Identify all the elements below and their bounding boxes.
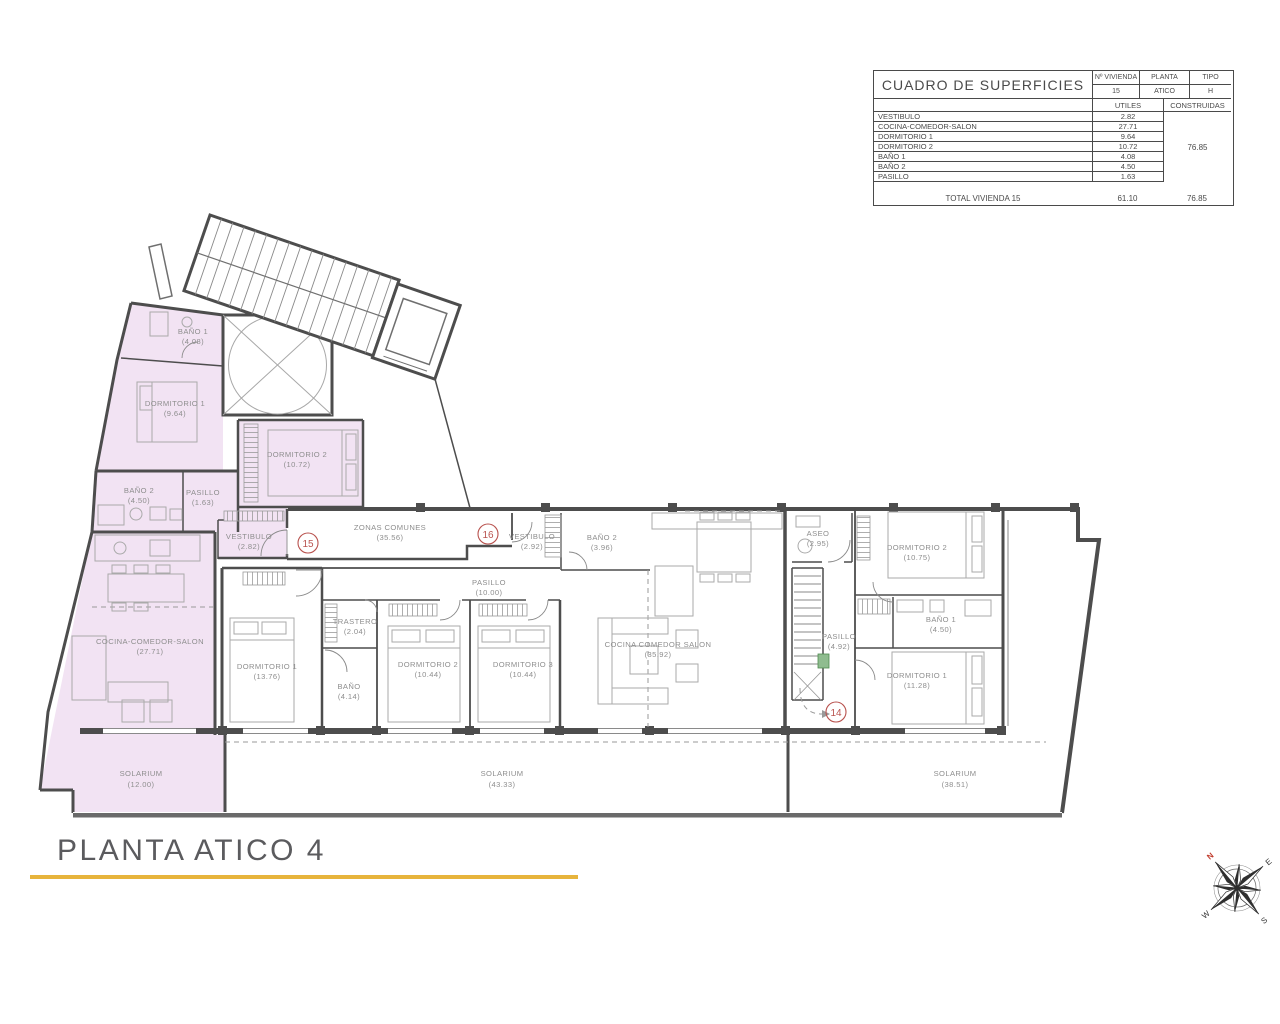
room-label: COCINA COMEDOR SALON (605, 640, 712, 649)
table-row-label: COCINA-COMEDOR-SALON (874, 122, 1092, 132)
room-label: DORMITORIO 1 (237, 662, 297, 671)
room-label: BAÑO 1 (926, 615, 956, 624)
room-label: DORMITORIO 3 (493, 660, 553, 669)
room-area: (38.51) (942, 780, 969, 789)
col-planta: PLANTA (1139, 71, 1189, 85)
room-area: (35.56) (377, 533, 404, 542)
vivienda-value: 15 (1092, 85, 1139, 99)
room-label: PASILLO (822, 632, 856, 641)
room-area: (4.08) (182, 337, 204, 346)
compass-east-label: E (1264, 857, 1274, 867)
room-area: (2.92) (521, 542, 543, 551)
room-area: (2.82) (238, 542, 260, 551)
table-row-label: DORMITORIO 1 (874, 132, 1092, 142)
room-area: (4.50) (128, 496, 150, 505)
room-label: SOLARIUM (934, 769, 977, 778)
room-label: DORMITORIO 2 (887, 543, 947, 552)
unit-badges (298, 524, 846, 722)
room-label: BAÑO 2 (124, 486, 154, 495)
table-spacer (874, 182, 1233, 191)
construidas-total: 76.85 (1163, 112, 1231, 182)
col-vivienda: Nº VIVIENDA (1092, 71, 1139, 85)
col-tipo: TIPO (1189, 71, 1231, 85)
room-label: PASILLO (186, 488, 220, 497)
table-row-label: BAÑO 2 (874, 162, 1092, 172)
room-area: (4.14) (338, 692, 360, 701)
title-underline (30, 875, 578, 879)
room-area: (43.33) (489, 780, 516, 789)
room-label: DORMITORIO 1 (887, 671, 947, 680)
room-area: (2.95) (807, 539, 829, 548)
room-label: DORMITORIO 2 (267, 450, 327, 459)
table-row-label: BAÑO 1 (874, 152, 1092, 162)
room-label: SOLARIUM (481, 769, 524, 778)
compass-west-label: W (1200, 909, 1212, 921)
table-row-value: 27.71 (1092, 122, 1163, 132)
compass-north-label: N (1205, 851, 1215, 862)
table-row-label: VESTIBULO (874, 112, 1092, 122)
stairs-unit14 (794, 576, 821, 700)
room-label: PASILLO (472, 578, 506, 587)
room-label: VESTIBULO (226, 532, 272, 541)
table-row-value: 2.82 (1092, 112, 1163, 122)
room-area: (11.28) (904, 681, 930, 690)
room-area: (4.92) (828, 642, 850, 651)
table-row-label: PASILLO (874, 172, 1092, 182)
room-label: COCINA-COMEDOR-SALON (96, 637, 204, 646)
unit-number-16: 16 (482, 530, 494, 541)
room-area: (4.50) (930, 625, 952, 634)
room-area: (27.71) (137, 647, 164, 656)
unit-number-15: 15 (302, 539, 314, 550)
col-construidas: CONSTRUIDAS (1163, 99, 1231, 112)
surfaces-table: CUADRO DE SUPERFICIES Nº VIVIENDA PLANTA… (873, 70, 1234, 206)
room-area: (3.96) (591, 543, 613, 552)
compass-rose: N E S W (1173, 825, 1280, 953)
room-area: (13.76) (254, 672, 281, 681)
compass-south-label: S (1259, 915, 1269, 925)
room-area: (2.04) (344, 627, 366, 636)
room-label: ZONAS COMUNES (354, 523, 426, 532)
total-construidas: 76.85 (1163, 191, 1231, 205)
table-row-label: DORMITORIO 2 (874, 142, 1092, 152)
planta-value: ATICO (1139, 85, 1189, 99)
col-utiles: UTILES (1092, 99, 1163, 112)
room-area: (10.72) (284, 460, 311, 469)
table-row-value: 1.63 (1092, 172, 1163, 182)
room-area: (12.00) (128, 780, 155, 789)
room-area: (1.63) (192, 498, 214, 507)
room-label: TRASTERO (333, 617, 378, 626)
page-title: PLANTA ATICO 4 (57, 834, 326, 868)
room-area: (9.64) (164, 409, 186, 418)
table-title: CUADRO DE SUPERFICIES (874, 71, 1092, 99)
room-label: ASEO (807, 529, 830, 538)
total-utiles: 61.10 (1092, 191, 1163, 205)
room-area: (10.44) (510, 670, 537, 679)
room-label: BAÑO (337, 682, 360, 691)
empty-cell (874, 99, 1092, 112)
room-label: DORMITORIO 2 (398, 660, 458, 669)
room-label: BAÑO 1 (178, 327, 208, 336)
room-area: (35.92) (645, 650, 672, 659)
total-label: TOTAL VIVIENDA 15 (874, 191, 1092, 205)
room-area: (10.75) (904, 553, 931, 562)
room-label: DORMITORIO 1 (145, 399, 205, 408)
room-label: BAÑO 2 (587, 533, 617, 542)
room-label: VESTIBULO (509, 532, 555, 541)
table-row-value: 4.50 (1092, 162, 1163, 172)
table-row-value: 10.72 (1092, 142, 1163, 152)
tipo-value: H (1189, 85, 1231, 99)
unit-number-14: 14 (830, 708, 842, 719)
table-row-value: 4.08 (1092, 152, 1163, 162)
room-area: (10.44) (415, 670, 442, 679)
exterior-wall-fragment (149, 244, 172, 299)
table-row-value: 9.64 (1092, 132, 1163, 142)
floor-plan-page: { "page": { "title": "PLANTA ATICO 4" },… (0, 0, 1280, 1024)
room-area: (10.00) (476, 588, 503, 597)
room-label: SOLARIUM (120, 769, 163, 778)
door-marker (818, 654, 829, 668)
